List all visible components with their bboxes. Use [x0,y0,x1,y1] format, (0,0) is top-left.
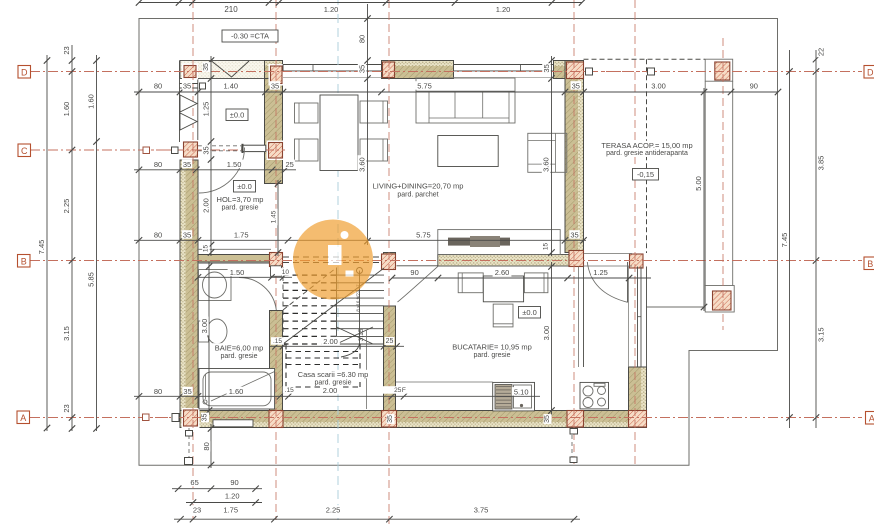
svg-text:35: 35 [203,63,210,71]
svg-text:2.60: 2.60 [495,268,510,277]
svg-text:3.85: 3.85 [817,156,826,171]
svg-text:A: A [20,413,26,423]
svg-text:22: 22 [817,48,826,56]
svg-text:1.75: 1.75 [234,231,249,240]
svg-text:35: 35 [572,82,580,91]
svg-text:7.45: 7.45 [37,240,46,255]
svg-text:1.25: 1.25 [202,102,211,117]
svg-text:1.75: 1.75 [223,506,238,515]
svg-text:2.00: 2.00 [323,386,338,395]
svg-text:35: 35 [570,231,578,240]
svg-text:80: 80 [358,35,367,43]
svg-text:pard. gresie: pard. gresie [222,205,259,212]
svg-text:2.00: 2.00 [202,198,211,213]
svg-text:2.00: 2.00 [323,337,338,346]
svg-text:35: 35 [183,160,191,169]
svg-text:80: 80 [202,442,211,450]
svg-text:Casa scarii =6.30 mp: Casa scarii =6.30 mp [298,370,369,379]
svg-text:35: 35 [183,82,191,91]
svg-text:1.60: 1.60 [62,102,71,117]
svg-text:D: D [867,67,874,77]
svg-text:±0.0: ±0.0 [230,110,245,119]
svg-text:BAIE=6,00 mp: BAIE=6,00 mp [215,344,264,353]
svg-text:25: 25 [286,160,294,169]
svg-text:35: 35 [202,146,211,154]
svg-text:-0,15: -0,15 [637,170,654,179]
svg-text:-0.30 =CTA: -0.30 =CTA [231,32,269,41]
svg-text:7.45: 7.45 [780,233,789,248]
svg-text:1.50: 1.50 [230,268,245,277]
svg-text:23: 23 [193,506,201,515]
svg-text:210: 210 [224,5,238,14]
svg-text:BUCATARIE= 10,95 mp: BUCATARIE= 10,95 mp [452,343,532,352]
svg-text:3.15: 3.15 [817,327,826,342]
svg-text:35: 35 [542,64,551,72]
svg-text:80: 80 [154,231,162,240]
svg-text:5.10: 5.10 [514,387,529,396]
svg-text:1.25: 1.25 [593,268,608,277]
svg-text:3.00: 3.00 [542,326,551,341]
svg-text:±0.0: ±0.0 [237,182,252,191]
svg-text:LIVING+DINING=20,70 mp: LIVING+DINING=20,70 mp [373,182,464,191]
svg-text:pard. gresie antiderapanta: pard. gresie antiderapanta [606,150,688,157]
svg-text:23: 23 [62,404,71,412]
svg-text:35: 35 [183,387,191,396]
svg-text:C: C [21,146,28,156]
svg-text:1.40: 1.40 [223,82,238,91]
svg-text:1.20: 1.20 [324,5,339,14]
svg-text:3.00: 3.00 [200,319,209,334]
svg-text:pard. gresie: pard. gresie [315,380,352,387]
svg-text:3,15: 3,15 [358,328,365,341]
svg-text:35: 35 [202,414,209,422]
svg-text:10: 10 [282,269,290,276]
svg-text:5.85: 5.85 [87,272,96,287]
svg-text:TERASA ACOP.= 15,00 mp: TERASA ACOP.= 15,00 mp [601,141,692,150]
svg-text:90: 90 [750,82,758,91]
svg-text:15: 15 [203,245,210,253]
svg-text:5.00: 5.00 [694,176,703,191]
svg-text:pard. gresie: pard. gresie [221,353,258,360]
svg-text:3.60: 3.60 [358,157,367,172]
svg-text:.15: .15 [273,338,282,345]
svg-text:1.60: 1.60 [229,387,244,396]
svg-text:D: D [21,67,28,77]
svg-text:pard. gresie: pard. gresie [474,352,511,359]
svg-text:pard. parchet: pard. parchet [397,192,438,199]
svg-text:35: 35 [387,415,394,423]
svg-text:B: B [21,256,27,266]
svg-text:2.25: 2.25 [62,199,71,214]
svg-text:1.50: 1.50 [227,160,242,169]
svg-text:25 F: 25 F [394,387,406,394]
svg-text:.15: .15 [285,387,294,394]
svg-text:90: 90 [410,268,418,277]
svg-text:3.15: 3.15 [62,326,71,341]
svg-text:3.00: 3.00 [651,82,666,91]
svg-text:1.20: 1.20 [225,492,240,501]
svg-text:35: 35 [183,231,191,240]
svg-text:35: 35 [271,82,279,91]
svg-text:3.60: 3.60 [542,157,551,172]
svg-text:25: 25 [386,338,394,345]
svg-text:1.60: 1.60 [87,94,96,109]
svg-text:65: 65 [190,478,198,487]
svg-text:B: B [867,259,873,269]
svg-text:35: 35 [544,415,551,423]
svg-text:1.45: 1.45 [271,210,278,223]
svg-text:3.75: 3.75 [474,506,489,515]
svg-text:±0.0: ±0.0 [522,308,537,317]
svg-text:5.75: 5.75 [416,231,431,240]
svg-text:35: 35 [358,65,367,73]
svg-text:90: 90 [230,478,238,487]
svg-text:5.75: 5.75 [417,82,432,91]
svg-text:15: 15 [543,243,550,251]
svg-text:2.25: 2.25 [326,506,341,515]
svg-text:80: 80 [154,82,162,91]
svg-text:80: 80 [154,160,162,169]
svg-text:23: 23 [62,46,71,54]
svg-text:HOL=3,70 mp: HOL=3,70 mp [217,195,264,204]
svg-text:A: A [869,413,874,423]
svg-text:80: 80 [154,387,162,396]
svg-text:1.20: 1.20 [496,5,511,14]
